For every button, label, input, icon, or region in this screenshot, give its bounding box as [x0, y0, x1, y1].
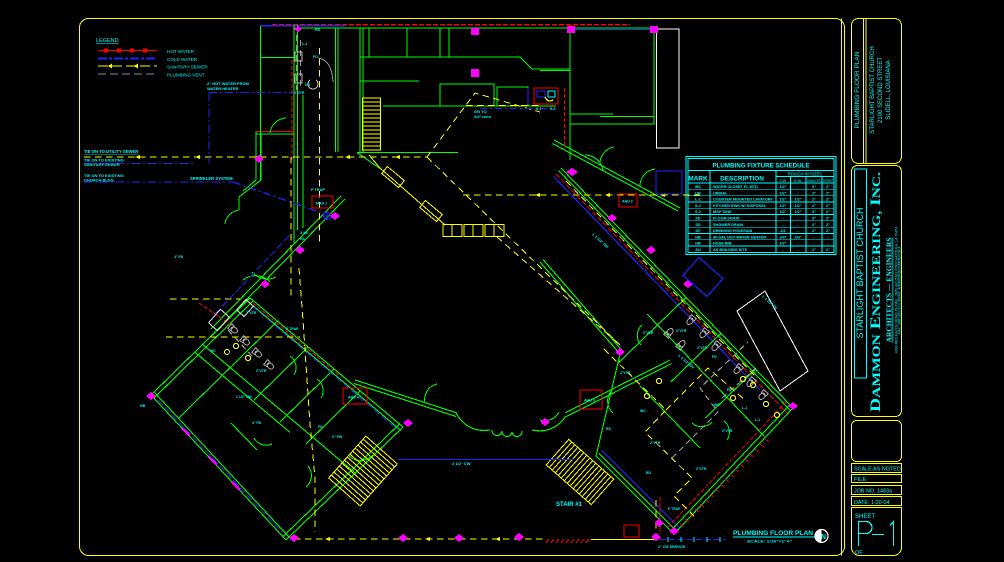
svg-text:DRINKING FOUNTAIN: DRINKING FOUNTAIN [713, 229, 752, 233]
svg-text:CW: CW [780, 178, 787, 183]
svg-text:H4: H4 [300, 237, 305, 241]
svg-text:2100 SECOND STREET: 2100 SECOND STREET [878, 57, 884, 123]
svg-text:L-1: L-1 [695, 198, 701, 202]
svg-text:SHEET: SHEET [855, 514, 875, 520]
svg-text:3": 3" [812, 210, 816, 214]
svg-text:RD: RD [315, 28, 321, 32]
svg-text:2"VTR: 2"VTR [620, 371, 631, 375]
svg-text:X ML: X ML [300, 231, 309, 235]
svg-text:VENT: VENT [823, 178, 834, 183]
svg-text:DATE: 1-20-04: DATE: 1-20-04 [854, 500, 890, 506]
svg-text:MAU 1: MAU 1 [316, 202, 327, 206]
svg-text:2"VTR: 2"VTR [294, 91, 305, 95]
svg-text:2"VTR: 2"VTR [256, 369, 267, 373]
svg-text:FILE:: FILE: [854, 477, 868, 483]
svg-text:1/2: 1/2 [780, 229, 785, 233]
svg-text:ARCHITECTS — ENGINEERS: ARCHITECTS — ENGINEERS [885, 237, 894, 342]
svg-text:FAX: (985) 882-9000 EMAIL: D: FAX: (985) 882-9000 EMAIL: DAMMON@CHARTE… [898, 246, 902, 333]
svg-text:2": 2" [812, 198, 816, 202]
svg-text:WC: WC [695, 185, 702, 189]
svg-text:L-1: L-1 [755, 418, 760, 422]
svg-text:WC: WC [210, 349, 216, 353]
svg-text:DF: DF [695, 229, 701, 233]
svg-text:HOT WATER: HOT WATER [167, 49, 195, 54]
svg-text:SHOWER DRAIN: SHOWER DRAIN [713, 223, 743, 227]
svg-text:PLUMBING FLOOR PLAN: PLUMBING FLOOR PLAN [854, 51, 861, 128]
svg-text:3/4": 3/4" [794, 235, 801, 239]
svg-text:AHU 4: AHU 4 [348, 396, 359, 400]
svg-text:SPRINKLER SYSTEM: SPRINKLER SYSTEM [190, 176, 233, 181]
svg-text:SANITARY SEWER: SANITARY SEWER [84, 162, 120, 167]
svg-text:SD: SD [695, 223, 701, 227]
svg-text:H.W.: H.W. [794, 178, 803, 183]
svg-text:S-1: S-1 [695, 204, 701, 208]
svg-text:WC: WC [714, 403, 720, 407]
svg-text:1/2": 1/2" [794, 210, 801, 214]
svg-text:TIE ON TO UTILITY SEWER: TIE ON TO UTILITY SEWER [84, 149, 138, 154]
svg-text:LEGEND: LEGEND [96, 38, 119, 44]
svg-text:1/2": 1/2" [794, 204, 801, 208]
svg-text:RD: RD [646, 471, 651, 475]
svg-text:FD: FD [313, 55, 318, 59]
svg-text:FD: FD [318, 425, 323, 429]
svg-text:1/2": 1/2" [779, 242, 786, 246]
svg-text:P TRAP: P TRAP [311, 188, 325, 192]
svg-text:RD: RD [606, 427, 611, 431]
svg-text:2"VTR: 2"VTR [676, 329, 687, 333]
svg-text:SCALE:AS NOTED: SCALE:AS NOTED [854, 467, 901, 473]
svg-text:2": 2" [826, 185, 830, 189]
svg-text:P TRAP: P TRAP [286, 327, 299, 331]
svg-text:AU: AU [695, 248, 701, 252]
svg-text:DAMMON ENGINEERING, INC.: DAMMON ENGINEERING, INC. [868, 172, 884, 412]
svg-text:1/2": 1/2" [794, 198, 801, 202]
svg-text:HB: HB [140, 404, 146, 408]
svg-text:PLUMBING VENT: PLUMBING VENT [167, 73, 205, 78]
svg-text:MARK: MARK [688, 176, 708, 183]
svg-text:3": 3" [812, 185, 816, 189]
svg-text:FD: FD [727, 388, 732, 392]
svg-text:HB: HB [695, 242, 701, 246]
svg-text:2"VTR: 2"VTR [697, 346, 708, 350]
svg-text:PLUMBING FLOOR PLAN: PLUMBING FLOOR PLAN [733, 530, 813, 537]
svg-text:2" FW: 2" FW [332, 435, 343, 439]
svg-text:OF: OF [855, 550, 863, 556]
svg-text:KITCHEN SINK W/ DISPOSAL: KITCHEN SINK W/ DISPOSAL [713, 204, 767, 208]
svg-text:SANITARY SEWER: SANITARY SEWER [167, 65, 208, 70]
svg-text:AS BUILDING SITE: AS BUILDING SITE [713, 248, 748, 252]
svg-text:1 1/2" CW: 1 1/2" CW [236, 395, 253, 399]
svg-text:3/4": 3/4" [779, 235, 786, 239]
svg-text:4" FB: 4" FB [174, 255, 184, 259]
svg-text:2": 2" [812, 229, 816, 233]
svg-text:L-1: L-1 [302, 42, 307, 46]
svg-text:WATER CLOSET FL MTD: WATER CLOSET FL MTD [713, 185, 758, 189]
svg-text:2": 2" [812, 204, 816, 208]
svg-text:40 GAL HOT WATER HEATER: 40 GAL HOT WATER HEATER [713, 235, 766, 239]
svg-text:1/2": 1/2" [779, 185, 786, 189]
svg-text:DESCRIPTION: DESCRIPTION [720, 176, 764, 183]
svg-text:2": 2" [826, 198, 830, 202]
svg-text:2"VTR: 2"VTR [650, 441, 661, 445]
svg-text:2": 2" [826, 229, 830, 233]
svg-text:S-2: S-2 [550, 107, 555, 111]
svg-text:2": 2" [812, 191, 816, 195]
svg-text:2": 2" [826, 210, 830, 214]
svg-text:SLIDELL, LOUISIANA: SLIDELL, LOUISIANA [886, 60, 892, 119]
svg-text:2": 2" [826, 191, 830, 195]
svg-text:FD: FD [695, 217, 700, 221]
svg-text:URINAL: URINAL [713, 191, 728, 195]
svg-text:3": 3" [812, 217, 816, 221]
svg-text:2"VTR: 2"VTR [246, 311, 257, 315]
svg-text:HOSE BIB: HOSE BIB [713, 242, 732, 246]
svg-text:STARLIGHT BAPTIST CHURCH: STARLIGHT BAPTIST CHURCH [855, 207, 865, 338]
svg-text:3/4"conn: 3/4"conn [474, 114, 492, 119]
svg-text:STAIR #1: STAIR #1 [556, 502, 583, 508]
svg-text:ROUGH IN SIZES: ROUGH IN SIZES [788, 172, 822, 177]
svg-text:2"VTR: 2"VTR [696, 467, 707, 471]
svg-text:L-1: L-1 [742, 406, 747, 410]
svg-text:2": 2" [812, 248, 816, 252]
svg-text:AHU 3: AHU 3 [584, 399, 595, 403]
svg-text:UR: UR [305, 83, 310, 87]
svg-text:1/2": 1/2" [779, 210, 786, 214]
svg-text:2": 2" [826, 223, 830, 227]
svg-text:2 1/2" CW: 2 1/2" CW [452, 461, 471, 466]
svg-text:PLUMBING FIXTURE SCHEDULE: PLUMBING FIXTURE SCHEDULE [713, 163, 810, 170]
svg-text:2": 2" [812, 223, 816, 227]
svg-text:2"VTR: 2"VTR [722, 429, 733, 433]
svg-text:2": 2" [826, 248, 830, 252]
svg-text:COLD WATER: COLD WATER [167, 57, 198, 62]
svg-text:4" FB: 4" FB [252, 421, 262, 425]
svg-text:SCALE: 1/16"=1'-0": SCALE: 1/16"=1'-0" [747, 539, 792, 544]
svg-text:S-1: S-1 [536, 107, 541, 111]
svg-text:JOB NO. 1483a: JOB NO. 1483a [854, 489, 892, 495]
svg-text:1/2": 1/2" [779, 191, 786, 195]
svg-text:P TRAP: P TRAP [668, 507, 681, 511]
svg-text:2" CW SERVICE: 2" CW SERVICE [658, 545, 686, 549]
svg-text:CHURCH BLDG.: CHURCH BLDG. [84, 178, 115, 183]
svg-text:1/2": 1/2" [779, 204, 786, 208]
svg-text:FD: FD [712, 355, 717, 359]
svg-text:COUNTER MOUNTED LAVATORY: COUNTER MOUNTED LAVATORY [713, 198, 773, 202]
svg-text:HB: HB [695, 235, 701, 239]
svg-text:FLOOR DRAIN: FLOOR DRAIN [713, 217, 740, 221]
svg-text:STARLIGHT BAPTIST CHURCH: STARLIGHT BAPTIST CHURCH [870, 46, 876, 133]
svg-text:WC: WC [640, 409, 646, 413]
svg-text:MOP SINK: MOP SINK [713, 210, 732, 214]
svg-text:WASTE: WASTE [807, 178, 821, 183]
svg-text:S-2: S-2 [695, 210, 701, 214]
svg-text:2": 2" [826, 217, 830, 221]
svg-text:WATER HEATER: WATER HEATER [207, 86, 239, 91]
svg-text:AHU 2: AHU 2 [622, 200, 633, 204]
svg-text:N: N [821, 534, 826, 541]
svg-text:2"VTR: 2"VTR [643, 331, 654, 335]
svg-text:1/2": 1/2" [779, 198, 786, 202]
svg-text:2": 2" [826, 204, 830, 208]
